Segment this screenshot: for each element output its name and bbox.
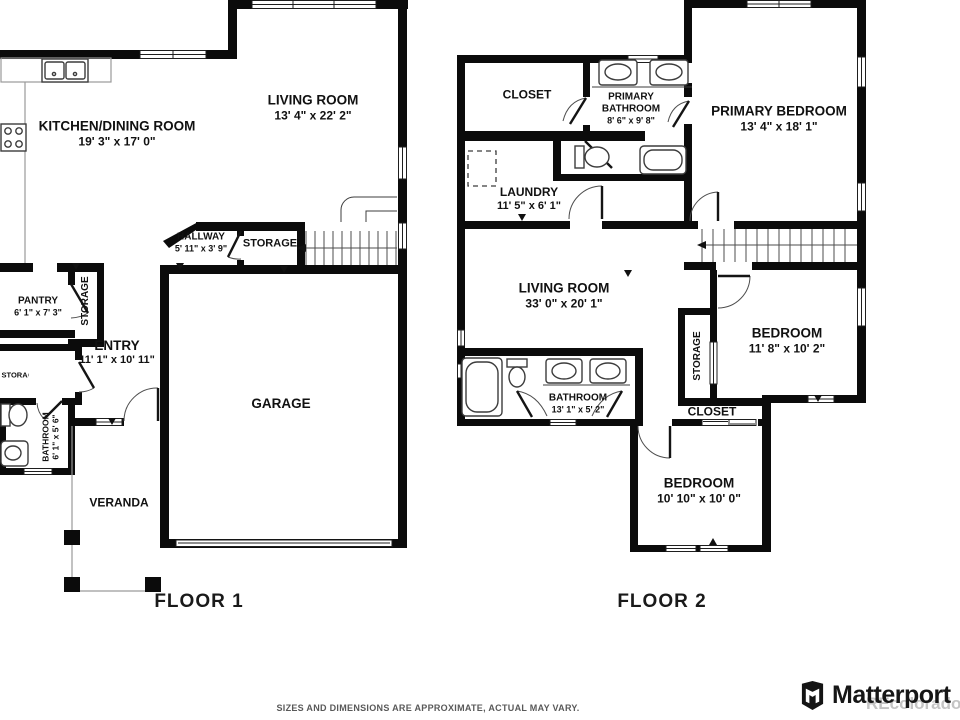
- wall-segment: [457, 419, 550, 426]
- window: [858, 288, 866, 326]
- room-dims: 13' 4" x 18' 1": [711, 120, 847, 135]
- room-name: VERANDA: [89, 496, 148, 511]
- floor1-title: FLOOR 1: [154, 591, 243, 613]
- room-name: STORAGE: [2, 370, 29, 379]
- door-bathroom2-left: [517, 391, 547, 417]
- brand-logo: Matterport: [799, 681, 951, 710]
- sliding-door: [710, 342, 717, 384]
- room-dims: 6' 1" x 7' 3": [14, 308, 62, 319]
- room-name: BATHROOM: [41, 412, 51, 461]
- room-name: GARAGE: [251, 396, 310, 412]
- room-label-laundry: LAUNDRY 11' 5" x 6' 1": [497, 185, 561, 213]
- wall-segment: [75, 392, 82, 405]
- wall-segment: [297, 222, 305, 265]
- wall-segment: [630, 545, 666, 552]
- room-dims: 33' 0" x 20' 1": [519, 297, 610, 312]
- room-dims: 13' 1" x 5' 2": [549, 405, 607, 416]
- room-label-closet2: CLOSET: [688, 405, 737, 420]
- veranda-post: [64, 530, 80, 545]
- door-bedroom-s: [638, 426, 670, 458]
- room-label-bedroom-s: BEDROOM 10' 10" x 10' 0": [657, 475, 741, 506]
- matterport-icon: [799, 681, 826, 710]
- door-front: [124, 388, 158, 421]
- room-label-primary-bedroom: PRIMARY BEDROOM 13' 4" x 18' 1": [711, 103, 847, 134]
- disclaimer-text: SIZES AND DIMENSIONS ARE APPROXIMATE, AC…: [276, 703, 579, 713]
- window: [858, 57, 866, 87]
- room-dims: 13' 4" x 22' 2": [268, 109, 359, 124]
- room-dims: 8' 6" x 9' 8": [588, 116, 674, 127]
- wall-segment: [553, 131, 561, 181]
- room-name: BEDROOM: [749, 325, 825, 341]
- wall-segment: [576, 419, 643, 426]
- sink-icon: [1, 441, 28, 466]
- room-label-closet-primary: CLOSET: [503, 88, 552, 103]
- room-name: BATHROOM: [549, 392, 607, 404]
- door-laundry: [569, 186, 602, 219]
- room-label-living1: LIVING ROOM 13' 4" x 22' 2": [268, 92, 359, 123]
- wall-segment: [696, 545, 700, 552]
- stairs-floor1: [297, 197, 397, 265]
- room-label-living2: LIVING ROOM 33' 0" x 20' 1": [519, 280, 610, 311]
- wall-segment: [734, 221, 866, 229]
- room-label-kitchen-dining: KITCHEN/DINING ROOM 19' 3" x 17' 0": [39, 118, 196, 149]
- window: [140, 51, 206, 59]
- room-dims: 5' 11" x 3' 9": [175, 244, 227, 255]
- wall-segment: [75, 418, 96, 426]
- wall-segment: [834, 395, 866, 403]
- double-sink-vanity: [543, 359, 630, 385]
- room-label-garage: GARAGE: [251, 396, 310, 412]
- wall-segment: [857, 87, 866, 183]
- wall-segment: [635, 348, 643, 426]
- wall-segment: [68, 272, 75, 285]
- room-label-primary-bathroom: PRIMARY BATHROOM 8' 6" x 9' 8": [588, 91, 674, 126]
- room-label-storage-entry: STORAGE: [2, 370, 29, 379]
- room-label-bedroom-ne: BEDROOM 11' 8" x 10' 2": [749, 325, 825, 356]
- wall-segment: [684, 0, 747, 8]
- bathtub-icon: [462, 358, 502, 416]
- door-closet-primary: [563, 98, 586, 124]
- room-name: STORAGE: [243, 237, 297, 250]
- floorplan-page: KITCHEN/DINING ROOM 19' 3" x 17' 0" LIVI…: [0, 0, 960, 720]
- floor2-title: FLOOR 2: [617, 591, 706, 613]
- room-name: LAUNDRY: [497, 185, 561, 200]
- wall-segment: [602, 221, 698, 229]
- wall-segment: [630, 419, 638, 552]
- bathtub-icon: [640, 146, 686, 174]
- stairs-floor2: [697, 229, 857, 262]
- toilet-icon: [507, 359, 527, 387]
- room-dims: 11' 8" x 10' 2": [749, 342, 825, 357]
- wall-segment: [684, 0, 692, 57]
- wall-segment: [0, 344, 82, 351]
- stairs-railing: [366, 211, 397, 222]
- wall-segment: [457, 55, 465, 330]
- room-label-storage-hall: STORAGE: [243, 237, 297, 250]
- room-name: BEDROOM: [657, 475, 741, 491]
- room-dims: 10' 10" x 10' 0": [657, 492, 741, 507]
- wall-segment: [684, 262, 716, 270]
- wall-segment: [857, 326, 866, 403]
- wall-segment: [457, 221, 570, 229]
- kitchen-sink: [42, 59, 88, 82]
- room-label-pantry: PANTRY 6' 1" x 7' 3": [14, 295, 62, 318]
- floor2-plan: [457, 0, 866, 552]
- wall-segment: [710, 270, 717, 342]
- window: [252, 1, 376, 9]
- room-name: CLOSET: [503, 88, 552, 103]
- veranda-post: [145, 577, 161, 592]
- wall-segment: [97, 263, 104, 347]
- window: [399, 223, 407, 249]
- wall-segment: [762, 419, 771, 552]
- room-name: PRIMARY BEDROOM: [711, 103, 847, 119]
- wall-segment: [228, 0, 237, 58]
- window: [700, 546, 728, 552]
- room-label-storage2: STORAGE: [692, 331, 704, 380]
- wall-segment: [752, 262, 866, 270]
- door-primary-bedroom: [690, 192, 718, 221]
- double-sink-vanity: [592, 60, 692, 87]
- room-dims: 11' 5" x 6' 1": [497, 200, 561, 213]
- kitchen-counter: [1, 58, 111, 263]
- wall-segment: [857, 0, 866, 57]
- wall-segment: [160, 265, 169, 548]
- window: [550, 420, 576, 426]
- stairs-railing: [341, 197, 397, 222]
- room-dims: 19' 3" x 17' 0": [39, 135, 196, 150]
- wall-segment: [678, 308, 685, 406]
- wall-segment: [0, 330, 75, 338]
- wall-segment: [672, 419, 702, 426]
- door-bedroom-ne: [718, 276, 750, 308]
- room-label-veranda: VERANDA: [89, 496, 148, 511]
- room-label-bathroom1: BATHROOM 6' 1" x 5' 6": [41, 412, 62, 461]
- window: [24, 469, 52, 475]
- wall-segment: [678, 308, 717, 315]
- wall-segment: [196, 222, 304, 231]
- wall-segment: [457, 131, 645, 141]
- stove-icon: [1, 124, 26, 151]
- window: [399, 147, 407, 179]
- washer-icon: [468, 151, 496, 186]
- room-name: LIVING ROOM: [268, 92, 359, 108]
- wall-segment: [710, 384, 717, 400]
- room-name: STORAGE: [80, 276, 92, 325]
- wall-segment: [0, 263, 33, 272]
- toilet-icon: [1, 404, 27, 426]
- door-storage-hall: [228, 231, 241, 259]
- room-name: ENTRY: [79, 338, 155, 354]
- wall-segment: [0, 468, 24, 475]
- garage-door: [176, 540, 392, 547]
- wall-segment: [457, 348, 643, 356]
- sliding-door: [702, 420, 756, 426]
- window: [458, 330, 465, 346]
- veranda-post: [64, 577, 80, 592]
- room-name: KITCHEN/DINING ROOM: [39, 118, 196, 134]
- window: [858, 183, 866, 211]
- toilet-icon: [575, 146, 609, 168]
- room-name: PRIMARY BATHROOM: [588, 91, 674, 115]
- wall-segment: [57, 263, 104, 272]
- room-dims: 6' 1" x 5' 6": [51, 412, 61, 461]
- wall-segment: [237, 260, 244, 274]
- room-label-entry: ENTRY 11' 1" x 10' 11": [79, 338, 155, 368]
- wall-segment: [553, 174, 692, 181]
- window: [747, 1, 811, 8]
- room-label-hallway: HALLWAY 5' 11" x 3' 9": [175, 231, 227, 254]
- room-name: STORAGE: [692, 331, 704, 380]
- room-name: LIVING ROOM: [519, 280, 610, 296]
- brand-name: Matterport: [832, 681, 951, 710]
- room-name: CLOSET: [688, 405, 737, 420]
- room-label-bathroom2: BATHROOM 13' 1" x 5' 2": [549, 392, 607, 415]
- room-name: PANTRY: [14, 295, 62, 307]
- window: [666, 546, 696, 552]
- room-dims: 11' 1" x 10' 11": [79, 355, 155, 368]
- room-name: HALLWAY: [175, 231, 227, 243]
- room-label-storage-pantry: STORAGE: [80, 276, 92, 325]
